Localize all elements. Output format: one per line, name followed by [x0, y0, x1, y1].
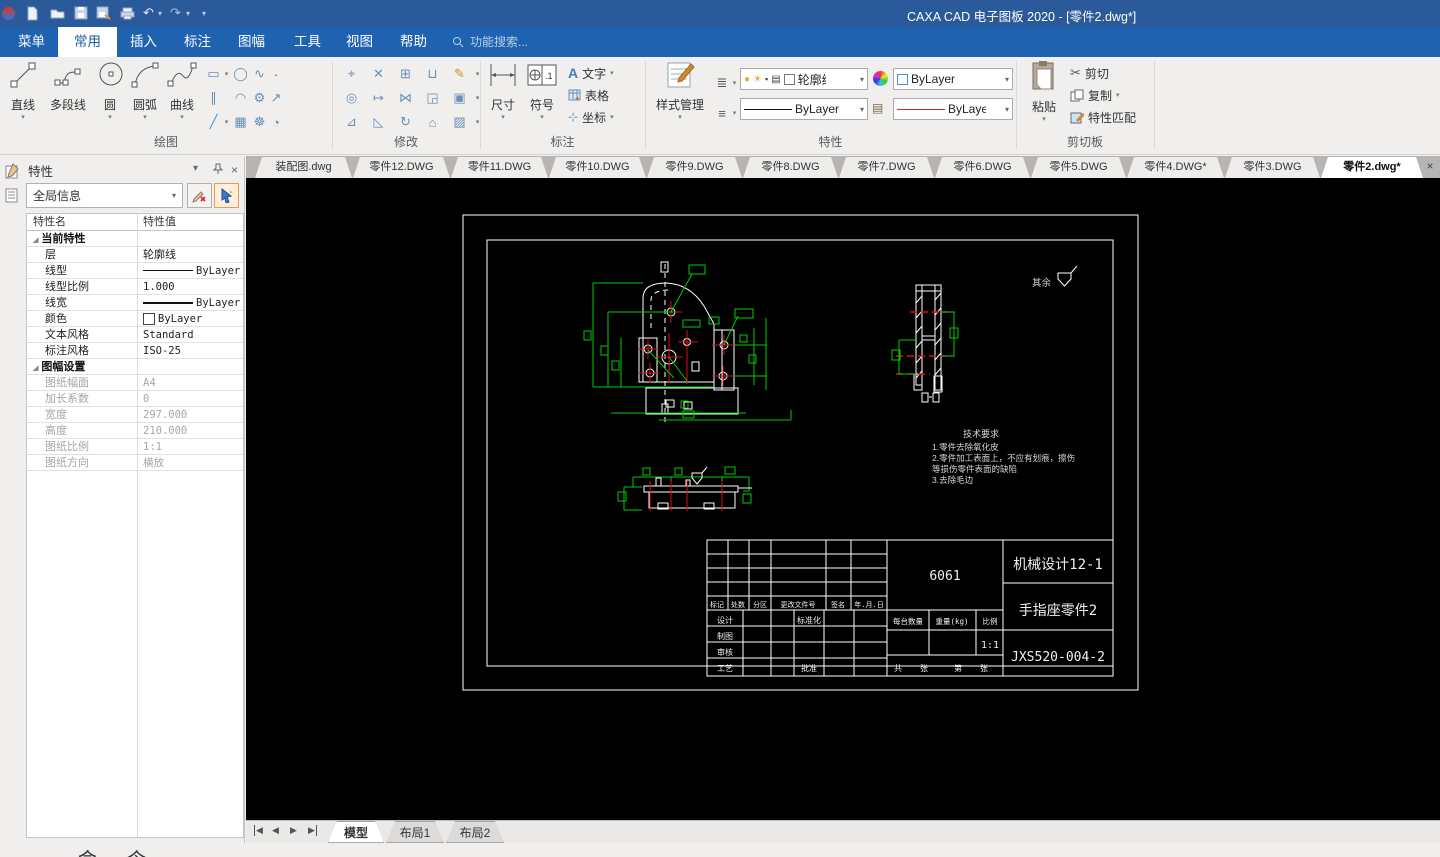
style-manager-button[interactable]: 样式管理▾ [649, 60, 711, 121]
first-sheet-icon[interactable]: ◀ [254, 825, 263, 836]
drawing-canvas[interactable]: 其余 [246, 178, 1440, 820]
text-icon: A [568, 65, 578, 81]
copy-icon [1070, 89, 1084, 102]
material-value: 6061 [929, 569, 960, 584]
caxa-cad-window: ↶ ▾ ↷ ▾ ▾ CAXA CAD 电子图板 2020 - [零件2.dwg*… [0, 0, 1440, 857]
surface-roughness-note: 其余 [1032, 266, 1077, 289]
doc-tab-active[interactable]: 零件2.dwg* [1321, 157, 1423, 178]
tab-layout2[interactable]: 布局2 [446, 821, 504, 843]
coordinate-icon: ⊹ [568, 110, 578, 124]
solids-icon[interactable]: ⚙ [250, 86, 269, 110]
erase-icon[interactable]: ✎ [446, 62, 473, 86]
undo-dropdown-icon[interactable]: ▾ [158, 4, 162, 22]
point-icon[interactable]: · [269, 62, 283, 86]
prop-row-lengthen[interactable]: 加长系数0 [27, 391, 243, 407]
layer-name: 轮廓线 [798, 71, 826, 88]
scale-value: 1:1 [981, 640, 999, 651]
tech-requirements: 技术要求 1.零件去除氧化皮 2.零件加工表面上，不应有划痕，擦伤 等损伤零件表… [932, 428, 1075, 485]
front-view [584, 262, 791, 426]
prop-row-paper-size[interactable]: 图纸幅面A4 [27, 375, 243, 391]
move-icon[interactable]: ⌖ [338, 62, 365, 86]
layers-dropdown-icon[interactable]: ▾ [730, 68, 739, 98]
menu-tab-sheet[interactable]: 图幅 [222, 27, 281, 57]
panel-dropdown-icon[interactable]: ▾ [193, 163, 198, 174]
prop-row-text-style[interactable]: 文本风格Standard [27, 327, 243, 343]
side-view [892, 285, 958, 402]
bottom-view [618, 467, 752, 511]
circle-icon [96, 60, 126, 90]
segment-dropdown-icon[interactable]: ▾ [222, 110, 231, 134]
lock-icon: ▪ [765, 74, 768, 84]
paste-icon [1030, 60, 1058, 92]
match-properties-icon [1070, 111, 1084, 124]
wipeout-icon[interactable]: ◔ [269, 110, 283, 134]
redo-dropdown-icon[interactable]: ▾ [186, 4, 190, 22]
edit-cancel-button[interactable] [187, 183, 212, 208]
command-line-partial[interactable]: 命令 [78, 845, 218, 857]
part-name: 手指座零件2 [1019, 603, 1097, 619]
undo-icon[interactable]: ↶ [143, 4, 154, 22]
stretch-icon[interactable]: ⊔ [419, 62, 446, 86]
arc-icon [130, 60, 160, 90]
segment-icon[interactable]: ╱ [205, 110, 222, 134]
spline-icon [167, 60, 197, 90]
group-sheet-settings[interactable]: ◢图幅设置 [27, 359, 243, 375]
svg-text:共: 共 [894, 664, 902, 673]
title-block-text: 6061 机械设计12-1 手指座零件2 JXS520-004-2 1:1 标记… [710, 557, 1105, 673]
symbol-icon: .1 [526, 60, 558, 90]
sun-icon: ☀ [753, 74, 762, 85]
layer-select[interactable]: ● ☀ ▪ ▤ 轮廓线 ▾ [740, 68, 868, 90]
save-all-icon[interactable] [96, 4, 111, 22]
svg-text:重量(kg): 重量(kg) [935, 617, 968, 626]
style-manager-icon [665, 60, 695, 90]
prop-row-linetype[interactable]: 线型ByLayer [27, 263, 243, 279]
dimension-icon [487, 60, 519, 90]
match-properties-tool[interactable]: 特性匹配 [1070, 106, 1136, 128]
arc-tool-button[interactable]: 圆弧▾ [127, 60, 163, 121]
class-name: 机械设计12-1 [1013, 557, 1103, 573]
line-icon [8, 60, 38, 90]
mirror-icon[interactable]: ⋈ [392, 86, 419, 110]
coordinate-tool[interactable]: ⊹ 坐标▾ [568, 106, 614, 128]
trim-icon[interactable]: ✕ [365, 62, 392, 86]
save-icon[interactable] [74, 4, 88, 22]
doc-tab[interactable]: 零件8.DWG [743, 157, 838, 178]
section-label-annotate: 标注 [480, 133, 645, 150]
doc-tab[interactable]: 零件5.DWG [1031, 157, 1126, 178]
table-icon: + [568, 89, 581, 101]
svg-text:签名: 签名 [831, 600, 845, 609]
section-label-modify: 修改 [332, 133, 480, 150]
section-label-draw: 绘图 [0, 133, 332, 150]
doc-tab[interactable]: 零件4.DWG* [1127, 157, 1224, 178]
close-document-icon[interactable]: × [1423, 159, 1437, 173]
doc-tab[interactable]: 零件7.DWG [839, 157, 934, 178]
svg-text:年.月.日: 年.月.日 [854, 600, 883, 609]
hatch-icon[interactable]: ▦ [231, 110, 250, 134]
svg-text:.1: .1 [545, 71, 553, 81]
svg-text:标准化: 标准化 [797, 615, 821, 625]
rectangle-dropdown-icon[interactable]: ▾ [222, 62, 231, 86]
bulb-icon: ● [744, 74, 750, 85]
3d-ops-icon[interactable]: ⌂ [419, 110, 446, 134]
text-tool[interactable]: A 文字▾ [568, 62, 614, 84]
menu-tab-view[interactable]: 视图 [330, 27, 389, 57]
library-palette-icon[interactable] [3, 186, 21, 206]
search-icon [452, 36, 464, 48]
scope-select[interactable]: 全局信息▾ [26, 183, 183, 208]
symbol-tool-button[interactable]: .1 符号▾ [524, 60, 560, 121]
ellipse-icon[interactable]: ◯ [231, 62, 250, 86]
dimstyle-value: ByLayer [948, 102, 986, 116]
panel-title: 特性 [28, 161, 53, 180]
rotate-icon[interactable]: ↻ [392, 110, 419, 134]
doc-tab[interactable]: 零件3.DWG [1225, 157, 1320, 178]
svg-text:张: 张 [920, 664, 928, 673]
doc-tab[interactable]: 装配图.dwg [255, 157, 352, 178]
svg-text:技术要求: 技术要求 [963, 428, 999, 439]
table-header: 特性名特性值 [27, 214, 243, 231]
prop-row-color[interactable]: 颜色ByLayer [27, 311, 243, 327]
prop-row-lineweight[interactable]: 线宽ByLayer [27, 295, 243, 311]
function-search[interactable]: 功能搜索... [452, 33, 528, 50]
section-label-props: 特性 [645, 133, 1016, 150]
tab-model[interactable]: 模型 [328, 821, 384, 843]
open-file-icon[interactable] [50, 4, 65, 22]
lineweight-dropdown-icon[interactable]: ▾ [730, 98, 739, 128]
doc-tab[interactable]: 零件11.DWG [451, 157, 548, 178]
linetype-value: ByLayer [795, 102, 839, 116]
properties-table[interactable]: 特性名特性值 ◢当前特性 层轮廓线 线型ByLayer 线型比例1.000 线宽… [26, 213, 244, 838]
svg-text:工艺: 工艺 [717, 664, 733, 673]
svg-text:1.零件去除氧化皮: 1.零件去除氧化皮 [932, 442, 999, 452]
spline-tool-button[interactable]: 曲线▾ [165, 60, 199, 121]
menu-tab-home[interactable]: 常用 [58, 27, 117, 57]
array-icon[interactable]: ⊞ [392, 62, 419, 86]
arrow-icon[interactable]: ↗ [269, 86, 283, 110]
prop-row-layer[interactable]: 层轮廓线 [27, 247, 243, 263]
document-tab-bar: 装配图.dwg 零件12.DWG 零件11.DWG 零件10.DWG 零件9.D… [246, 156, 1440, 178]
color-swatch [897, 74, 908, 85]
printer-mini-icon: ▤ [771, 74, 780, 85]
svg-text:比例: 比例 [983, 616, 998, 626]
svg-text:审核: 审核 [717, 647, 733, 657]
svg-text:2.零件加工表面上，不应有划痕，擦伤: 2.零件加工表面上，不应有划痕，擦伤 [932, 453, 1075, 463]
app-logo-icon [2, 4, 15, 22]
extend-icon[interactable]: ↦ [365, 86, 392, 110]
svg-text:3.去除毛边: 3.去除毛边 [932, 475, 974, 485]
select-entity-button[interactable] [214, 183, 239, 208]
prop-row-linetype-scale[interactable]: 线型比例1.000 [27, 279, 243, 295]
panel-close-icon[interactable]: × [231, 163, 238, 177]
svg-text:处数: 处数 [731, 600, 745, 609]
gear-icon[interactable]: ☸ [250, 110, 269, 134]
layers-icon[interactable]: ≣ [714, 68, 730, 98]
color-value: ByLayer [911, 72, 955, 86]
scale-icon[interactable]: ▣ [446, 86, 473, 110]
group-current-properties[interactable]: ◢当前特性 [27, 231, 243, 247]
svg-text:设计: 设计 [717, 615, 733, 625]
color-select[interactable]: ByLayer ▾ [893, 68, 1013, 90]
offset-icon[interactable]: ⊿ [338, 110, 365, 134]
svg-text:分区: 分区 [753, 600, 767, 609]
layout-tab-bar: ◀ ◀ ▶ ▶ 模型 布局1 布局2 [246, 820, 1440, 843]
doc-tab[interactable]: 零件6.DWG [935, 157, 1030, 178]
polyline-tool-button[interactable]: 多段线 [42, 60, 94, 113]
svg-text:更改文件号: 更改文件号 [781, 600, 816, 609]
redo-icon[interactable]: ↷ [170, 4, 181, 22]
section-label-clipboard: 剪切板 [1016, 133, 1154, 150]
menubar: 菜单 常用 插入 标注 图幅 工具 视图 帮助 功能搜索... [0, 27, 1440, 57]
doc-tab[interactable]: 零件9.DWG [647, 157, 742, 178]
prop-row-width[interactable]: 宽度297.000 [27, 407, 243, 423]
prop-row-scale[interactable]: 图纸比例1:1 [27, 439, 243, 455]
linetype-sample [744, 109, 792, 110]
layer-color-swatch [784, 74, 795, 85]
properties-panel: 特性 ▾ × 全局信息▾ 特性名特性值 ◢当前特性 层轮廓线 线型ByLayer… [0, 157, 245, 843]
menu-tab-help[interactable]: 帮助 [384, 27, 443, 57]
svg-text:第: 第 [954, 663, 962, 673]
new-file-icon[interactable] [26, 4, 39, 22]
drawing-number: JXS520-004-2 [1011, 650, 1105, 665]
tab-layout1[interactable]: 布局1 [386, 821, 444, 843]
color-wheel-icon[interactable] [873, 71, 888, 86]
parallel-line-icon[interactable]: ∥ [205, 86, 222, 110]
dimension-tool-button[interactable]: 尺寸▾ [486, 60, 520, 121]
function-curve-icon[interactable]: ∿ [250, 62, 269, 86]
fillet-icon[interactable]: ◲ [419, 86, 446, 110]
panel-pin-icon[interactable] [213, 163, 223, 177]
color-swatch [143, 313, 155, 325]
menu-tab-insert[interactable]: 插入 [114, 27, 173, 57]
properties-palette-icon[interactable] [3, 162, 21, 182]
table-tool[interactable]: + 表格 [568, 84, 609, 106]
next-sheet-icon[interactable]: ▶ [290, 825, 297, 836]
paste-button[interactable]: 粘贴▾ [1022, 60, 1066, 123]
menu-tab-menu[interactable]: 菜单 [2, 27, 61, 57]
cut-icon: ✂ [1070, 65, 1081, 81]
svg-text:制图: 制图 [717, 631, 733, 641]
cut-tool[interactable]: ✂ 剪切 [1070, 62, 1109, 84]
svg-text:标记: 标记 [710, 600, 724, 609]
dimstyle-select[interactable]: ByLayer ▾ [893, 98, 1013, 120]
copy-tool[interactable]: 复制▾ [1070, 84, 1120, 106]
linetype-sample [143, 270, 193, 271]
dimstyle-icon[interactable]: ▤ [872, 101, 883, 115]
toolbar-options-icon[interactable]: ▾ [202, 4, 206, 22]
prop-row-height[interactable]: 高度210.000 [27, 423, 243, 439]
svg-text:等损伤零件表面的缺陷: 等损伤零件表面的缺陷 [932, 464, 1017, 474]
polyline-icon [53, 60, 83, 90]
lineweight-icon[interactable]: ≡ [714, 98, 730, 128]
svg-text:张: 张 [980, 664, 988, 673]
last-sheet-icon[interactable]: ▶ [308, 825, 317, 836]
prop-row-dim-style[interactable]: 标注风格ISO-25 [27, 343, 243, 359]
svg-text:批准: 批准 [801, 663, 817, 673]
dimstyle-sample [897, 109, 945, 110]
hatch-edit-icon[interactable]: ▨ [446, 110, 473, 134]
lineweight-sample [143, 302, 193, 304]
menu-tab-annotate[interactable]: 标注 [168, 27, 227, 57]
titlebar: ↶ ▾ ↷ ▾ ▾ CAXA CAD 电子图板 2020 - [零件2.dwg*… [0, 0, 1440, 27]
copy-move-icon[interactable]: ◎ [338, 86, 365, 110]
contour-icon[interactable]: ◠ [231, 86, 250, 110]
line-tool-button[interactable]: 直线▾ [6, 60, 40, 121]
statusbar: 命令 [0, 843, 1440, 857]
chamfer-icon[interactable]: ◺ [365, 110, 392, 134]
ribbon: 直线▾ 多段线 圆▾ 圆弧▾ 曲线▾ ▭▾ ◯∿· ∥ ◠⚙↗ ╱▾ ▦☸◔ 绘… [0, 57, 1440, 155]
print-icon[interactable] [120, 4, 135, 22]
doc-tab[interactable]: 零件12.DWG [353, 157, 450, 178]
svg-text:其余: 其余 [1032, 277, 1052, 289]
prev-sheet-icon[interactable]: ◀ [272, 825, 279, 836]
svg-text:+: + [575, 94, 580, 101]
circle-tool-button[interactable]: 圆▾ [96, 60, 124, 121]
menu-tab-tools[interactable]: 工具 [278, 27, 337, 57]
prop-row-orientation[interactable]: 图纸方向横放 [27, 455, 243, 471]
rectangle-icon[interactable]: ▭ [205, 62, 222, 86]
linetype-select[interactable]: ByLayer ▾ [740, 98, 868, 120]
svg-text:每台数量: 每台数量 [893, 616, 923, 626]
window-title: CAXA CAD 电子图板 2020 - [零件2.dwg*] [907, 6, 1136, 25]
doc-tab[interactable]: 零件10.DWG [549, 157, 646, 178]
